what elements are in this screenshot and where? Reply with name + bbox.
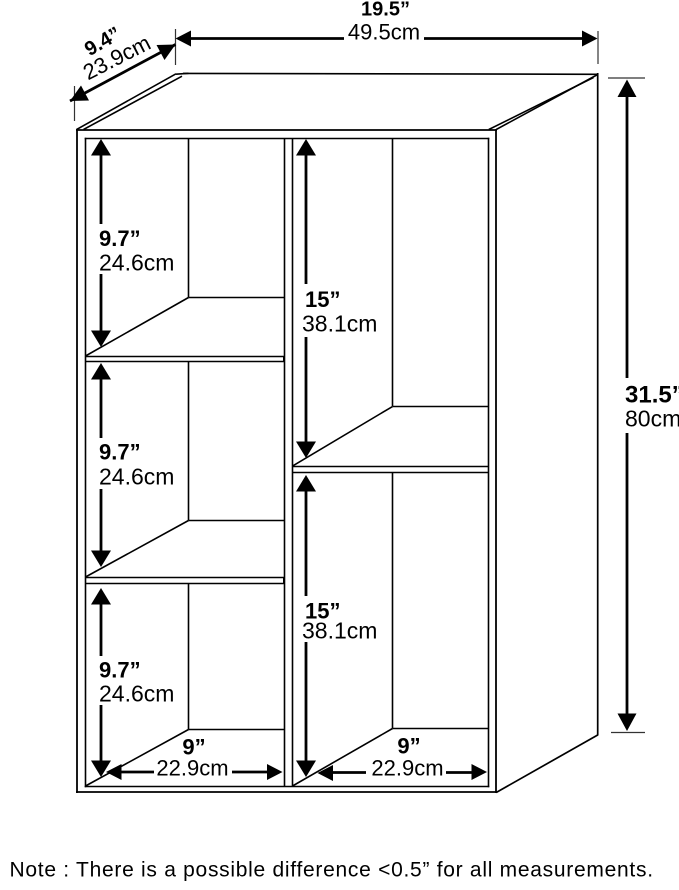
svg-text:80cm: 80cm <box>625 406 679 432</box>
svg-text:19.5”: 19.5” <box>361 0 410 21</box>
svg-text:Note : There is a possible dif: Note : There is a possible difference <0… <box>10 859 654 882</box>
svg-text:24.6cm: 24.6cm <box>99 250 174 276</box>
svg-text:22.9cm: 22.9cm <box>371 756 443 781</box>
svg-text:24.6cm: 24.6cm <box>99 464 174 490</box>
svg-text:9.7”: 9.7” <box>99 226 141 251</box>
svg-text:31.5”: 31.5” <box>625 382 679 409</box>
svg-text:49.5cm: 49.5cm <box>348 20 420 45</box>
svg-text:38.1cm: 38.1cm <box>302 311 377 337</box>
svg-text:38.1cm: 38.1cm <box>302 618 377 644</box>
svg-text:24.6cm: 24.6cm <box>99 681 174 707</box>
svg-text:9.7”: 9.7” <box>99 440 141 465</box>
svg-text:22.9cm: 22.9cm <box>156 756 228 781</box>
svg-text:15”: 15” <box>305 287 340 312</box>
svg-text:9.7”: 9.7” <box>99 658 141 683</box>
